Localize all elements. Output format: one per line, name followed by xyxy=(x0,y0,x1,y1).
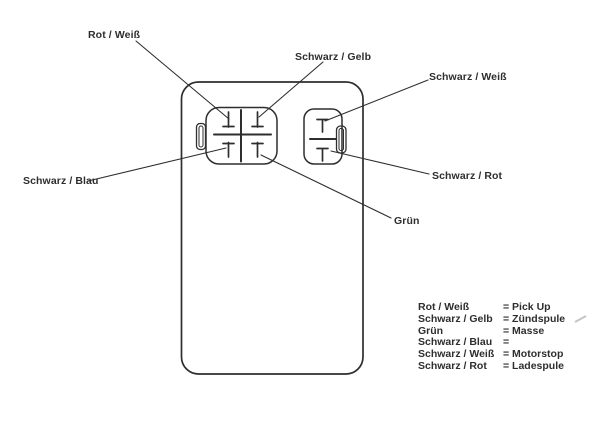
legend-term: Schwarz / Rot xyxy=(418,361,503,373)
pin-schwarz-weiss xyxy=(317,120,328,133)
left-plug xyxy=(197,108,278,165)
leader-schwarz-blau xyxy=(88,148,226,181)
legend-row: Schwarz / Rot = Ladespule xyxy=(418,361,565,373)
legend-value: = Masse xyxy=(503,326,544,338)
label-schwarz-rot: Schwarz / Rot xyxy=(432,170,502,182)
leader-rot-weiss xyxy=(136,41,229,119)
legend-row: Schwarz / Gelb = Zündspule xyxy=(418,314,565,326)
leader-lines xyxy=(88,41,429,218)
right-plug xyxy=(304,109,346,164)
stator-body-outline xyxy=(182,82,364,374)
pin-rot-weiss xyxy=(223,112,234,127)
left-plug-latch-tab-inner xyxy=(199,126,203,147)
pin-schwarz-gelb xyxy=(252,112,263,127)
legend-value: = Zündspule xyxy=(503,314,565,326)
pin-schwarz-rot xyxy=(317,149,328,162)
leader-schwarz-weiss xyxy=(325,80,428,121)
pin-schwarz-blau xyxy=(223,143,234,158)
legend-term: Schwarz / Gelb xyxy=(418,314,503,326)
legend: Rot / Weiß = Pick Up Schwarz / Gelb = Zü… xyxy=(418,302,565,373)
legend-value: = Ladespule xyxy=(503,361,564,373)
label-gruen: Grün xyxy=(394,215,419,227)
label-schwarz-gelb: Schwarz / Gelb xyxy=(295,51,371,63)
label-rot-weiss: Rot / Weiß xyxy=(88,29,140,41)
leader-schwarz-rot xyxy=(331,151,429,174)
label-schwarz-blau: Schwarz / Blau xyxy=(23,175,99,187)
wiring-diagram-page: Rot / Weiß Schwarz / Gelb Schwarz / Weiß… xyxy=(0,0,600,435)
left-plug-latch-tab xyxy=(197,124,206,150)
label-schwarz-weiss: Schwarz / Weiß xyxy=(429,71,507,83)
